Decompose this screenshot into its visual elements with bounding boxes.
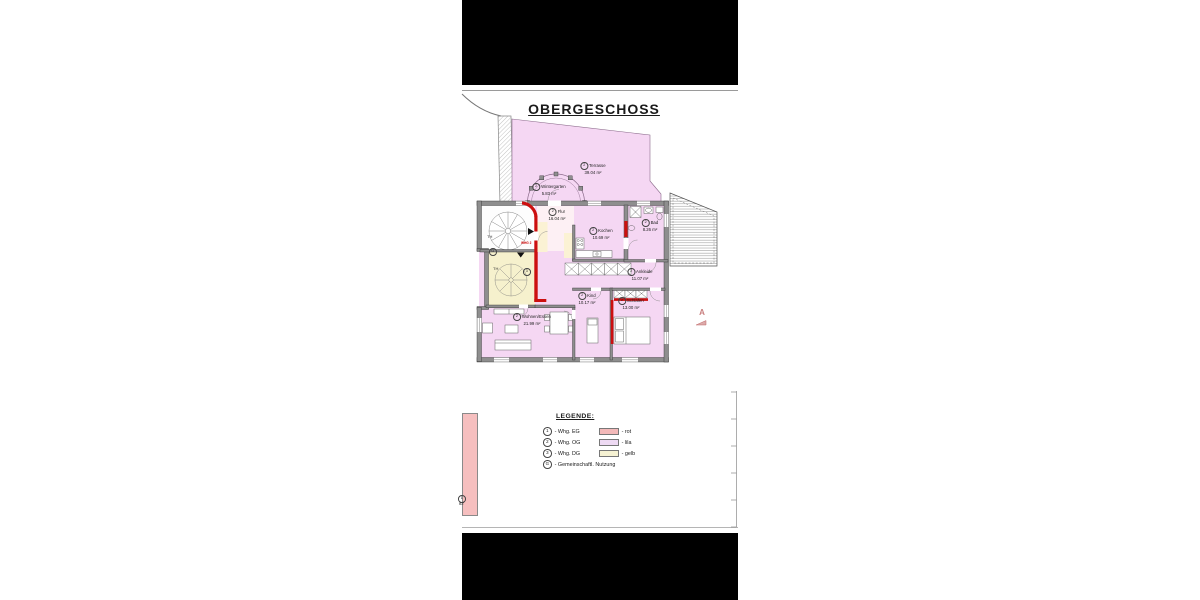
- legend-row-eg: 1 - Whg. EG - rot: [543, 426, 673, 437]
- stairwell-top-badge: G: [489, 243, 497, 261]
- room-number-badge: 2: [580, 162, 588, 170]
- eg-fragment-label: ST: [459, 501, 464, 506]
- room-label-flur: 2 Flur 16.04 m²: [549, 208, 566, 221]
- room-label-wohnen-essen: 2 Wohnen/Essen 21.99 m²: [513, 313, 551, 326]
- section-letter: A: [699, 308, 705, 317]
- top-redaction-bar: [462, 0, 738, 85]
- legend-row-dg: 3 - Whg. DG - gelb: [543, 448, 673, 459]
- legend: LEGENDE: 1 - Whg. EG - rot 2 - Whg. OG -…: [543, 413, 673, 470]
- room-label-wintergarten: 2 Wintergarten 5.83 m²: [532, 183, 565, 196]
- legend-badge: 1: [543, 427, 552, 436]
- legend-swatch-rot: [599, 428, 619, 435]
- tick-ruler: [731, 391, 737, 527]
- stairwell-top-label: TH: [487, 234, 492, 239]
- legend-swatch-lila: [599, 439, 619, 446]
- section-arrow-icon: [696, 321, 706, 326]
- room-label-kochen: 2 Kochen 10.69 m²: [589, 227, 612, 240]
- stairwell-bottom-label: TH: [493, 266, 498, 271]
- closet-row-ankleide: [565, 263, 631, 275]
- room-label-kind: 2 Kind 10.17 m²: [578, 292, 595, 305]
- legend-heading: LEGENDE:: [556, 413, 673, 420]
- room-label-ankleide: 2 Ankleide 11.07 m²: [627, 268, 652, 281]
- room-label-bad: 2 Bad 8.26 m²: [642, 219, 658, 232]
- bed-kind: [587, 318, 598, 343]
- room-label-terrasse: 2 Terrasse39.04 m²: [580, 162, 605, 175]
- bed-schlafen: [614, 317, 650, 344]
- legend-row-og: 2 - Whg. OG - lila: [543, 437, 673, 448]
- drawing-sheet: OBERGESCHOSS: [0, 0, 1200, 600]
- bottom-redaction-bar: [462, 533, 738, 600]
- stairwell-bottom-badge: 3: [523, 263, 531, 281]
- legend-row-gemeinschaft: G - Gemeinschaftl. Nutzung: [543, 459, 673, 470]
- apartment-entry-label: WHG 2: [521, 241, 531, 245]
- room-label-schlafen: 2 Schlafen 13.00 m²: [618, 297, 644, 310]
- legend-swatch-gelb: [599, 450, 619, 457]
